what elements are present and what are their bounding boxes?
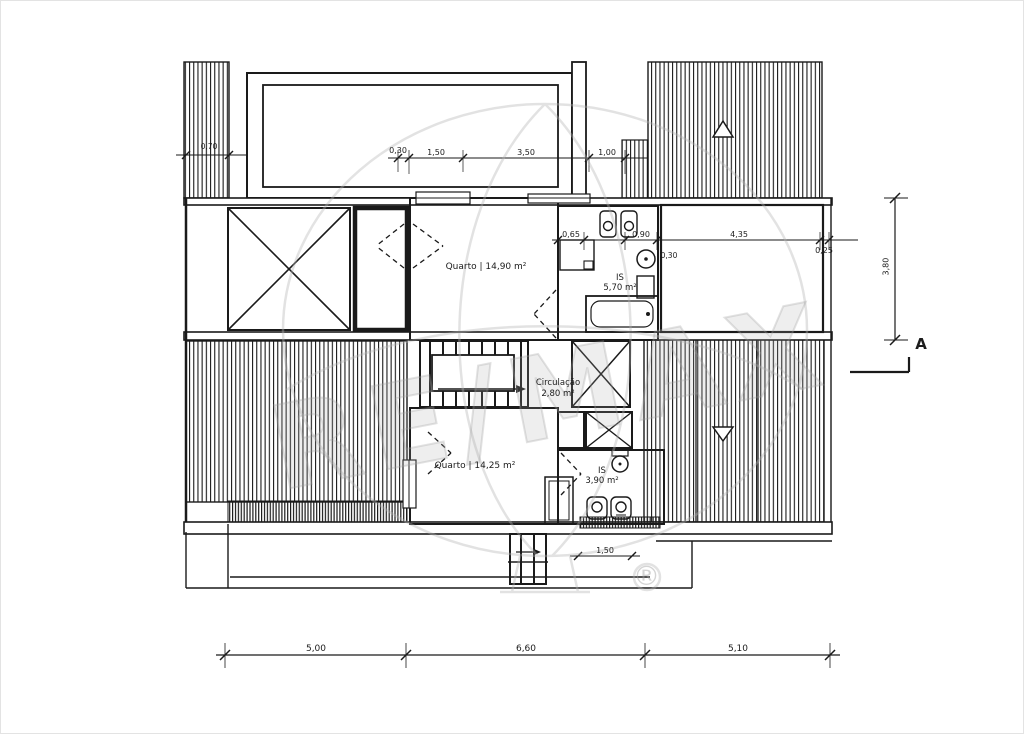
room-label-circulacao-area: 2,80 m² bbox=[520, 390, 596, 400]
room-right-terrace-outline bbox=[661, 205, 823, 332]
dim-label-mid-3: 4,35 bbox=[724, 230, 754, 239]
bathtub-icon bbox=[586, 296, 658, 332]
window-top-is1 bbox=[528, 194, 590, 203]
room-label-is1-area: 5,70 m² bbox=[597, 284, 643, 294]
toilet-icon bbox=[600, 211, 616, 237]
dim-label-bottom-3: 5,10 bbox=[722, 644, 754, 654]
section-cut-line bbox=[850, 357, 909, 372]
dim-label-right-vertical: 3,80 bbox=[881, 253, 890, 281]
dim-label-column: 0,30 bbox=[656, 252, 682, 261]
roof-hatch-right bbox=[644, 336, 824, 522]
dim-label-left-small: 0,70 bbox=[196, 143, 222, 152]
top-wall-pair bbox=[572, 62, 586, 198]
floor-plan-canvas: RE/MAX ® 0,30 1,50 3,50 1,00 0,70 0,65 0… bbox=[0, 0, 1024, 734]
dim-label-mid-1: 0,65 bbox=[558, 230, 584, 239]
dim-label-top-3: 3,50 bbox=[511, 148, 541, 157]
roof-hatch-top-left bbox=[184, 62, 229, 198]
dim-label-top-1: 0,30 bbox=[386, 146, 410, 155]
dim-label-bottom-1: 5,00 bbox=[300, 644, 332, 654]
window-sill-bathroom2 bbox=[580, 517, 660, 528]
room-is1-outline bbox=[558, 206, 658, 340]
dim-label-mid-4: 0,25 bbox=[810, 246, 838, 255]
dim-label-steps: 1,50 bbox=[590, 546, 620, 555]
skylight-x-box-small bbox=[586, 412, 632, 448]
washbasin-counter-icon bbox=[560, 240, 594, 270]
staircase bbox=[420, 341, 528, 407]
window-top-quarto1 bbox=[416, 192, 470, 204]
dim-label-bottom-2: 6,60 bbox=[510, 644, 542, 654]
room-label-circulacao-name: Circulação bbox=[520, 379, 596, 389]
room-label-quarto2: Quarto | 14,25 m² bbox=[416, 461, 534, 471]
room-label-is2-area: 3,90 m² bbox=[578, 477, 626, 487]
skylight-x-box-large bbox=[228, 208, 350, 330]
shaft-thick-box bbox=[355, 208, 407, 330]
dim-label-mid-2: 0,90 bbox=[627, 230, 655, 239]
room-label-quarto1: Quarto | 14,90 m² bbox=[428, 262, 544, 272]
roof-hatch-left-dense-band bbox=[228, 501, 407, 524]
column-icon bbox=[637, 250, 655, 268]
toilet2-icon bbox=[587, 497, 607, 519]
window-left-quarto2 bbox=[403, 460, 416, 508]
bidet2-icon bbox=[611, 497, 631, 519]
floor-plan-drawing bbox=[0, 0, 1024, 734]
roof-hatch-top-right bbox=[648, 62, 822, 198]
duct-box bbox=[558, 412, 584, 448]
section-marker-a: A bbox=[910, 336, 932, 353]
top-terrace bbox=[247, 62, 586, 198]
roof-hatch-top-right-step bbox=[622, 140, 648, 198]
dim-label-top-4: 1,00 bbox=[592, 148, 622, 157]
roof-hatch-left bbox=[186, 341, 407, 502]
dim-label-top-2: 1,50 bbox=[421, 148, 451, 157]
